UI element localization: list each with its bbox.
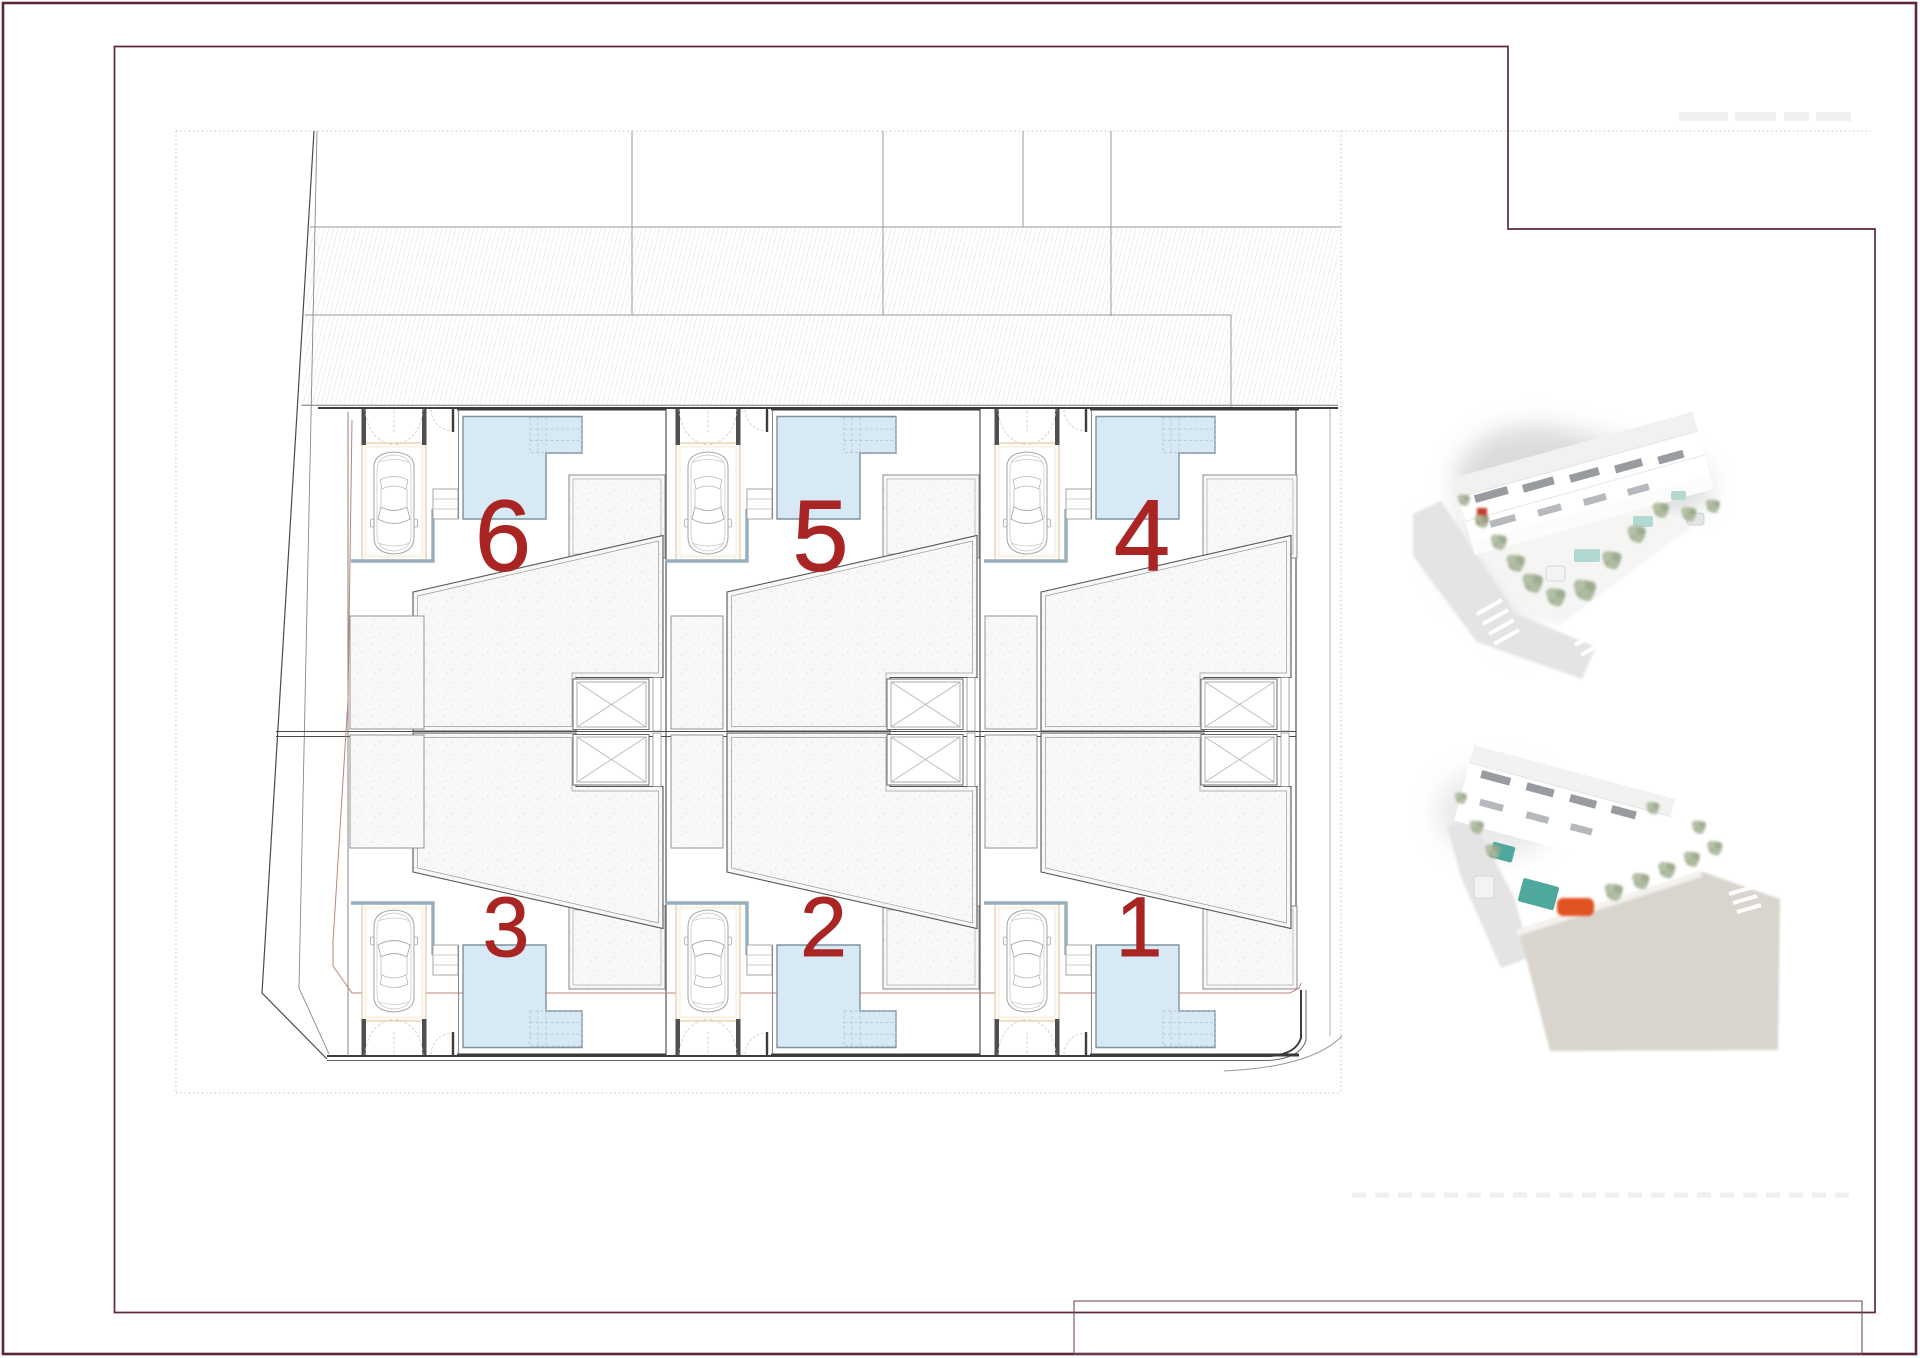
svg-text:4: 4: [1114, 481, 1170, 593]
svg-text:2: 2: [800, 880, 847, 974]
svg-text:5: 5: [792, 481, 848, 593]
svg-text:6: 6: [475, 481, 531, 593]
svg-text:3: 3: [483, 880, 530, 974]
svg-text:1: 1: [1116, 880, 1163, 974]
